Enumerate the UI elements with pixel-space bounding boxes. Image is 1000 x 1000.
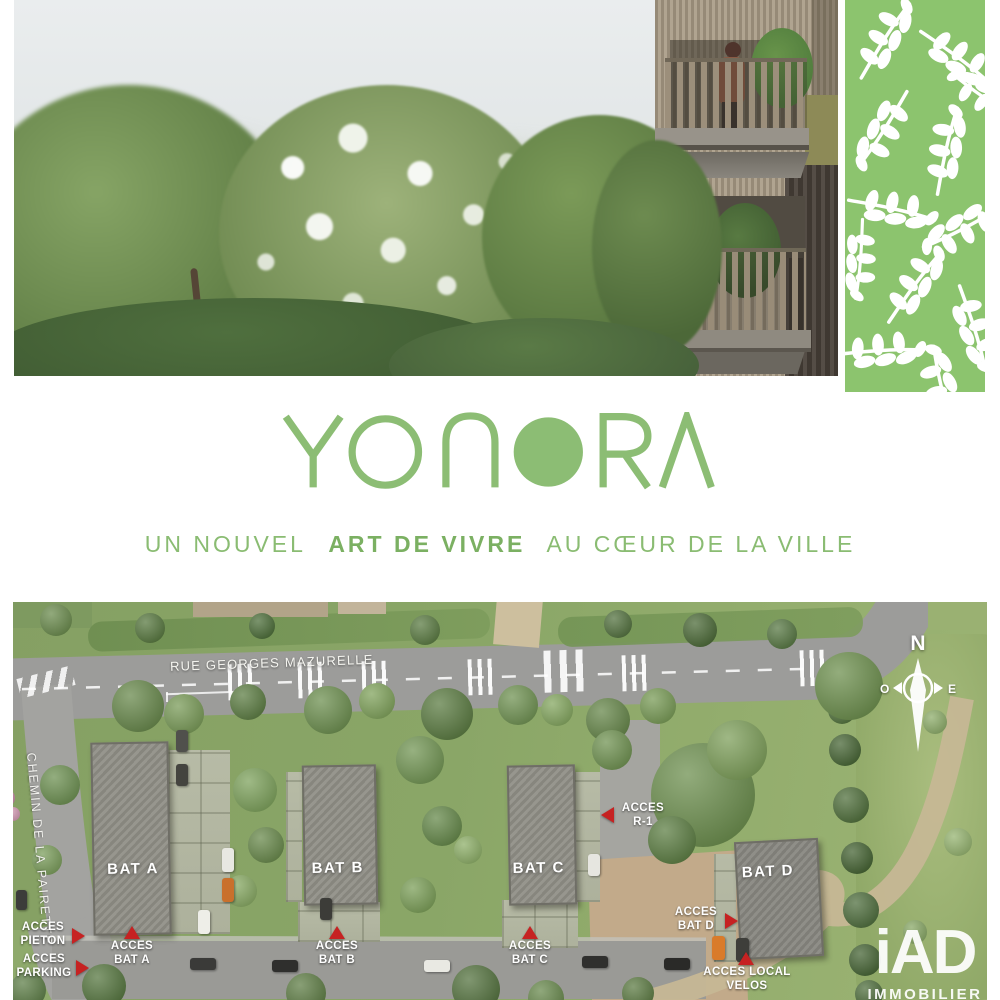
access-marker-r1: ACCESR-1 [616,801,670,830]
parked-car [424,960,450,972]
access-marker-pieton: ACCESPIETON [14,920,72,949]
margin-strip [0,602,13,1000]
iad-subtext: IMMOBILIER [860,986,990,1000]
access-arrow-icon [124,926,140,939]
margin-strip [987,602,1000,1000]
balcony-railing [665,58,807,132]
parked-car [712,936,725,960]
letter-n [446,416,495,487]
parked-car [176,764,188,786]
access-marker-bat-c: ACCESBAT C [498,939,562,968]
compass-north-label: N [910,632,925,656]
parked-car [320,898,332,920]
brand-logo: YONORA [0,412,1000,497]
parked-car [222,848,234,872]
iad-watermark: iAD IMMOBILIER [860,922,990,1000]
tagline-part: UN NOUVEL [145,531,306,557]
letter-r [603,417,648,488]
person [725,42,741,58]
parked-car [198,910,210,934]
compass-east-label: E [948,682,956,696]
access-marker-parking: ACCESPARKING [12,952,76,981]
letter-y [286,417,341,488]
site-plan: BAT A BAT B BAT C BAT D RUE GEORGES MAZU… [0,602,1000,1000]
access-arrow-icon [76,960,89,976]
compass: N O E [868,632,968,757]
access-marker-velos: ACCES LOCALVELOS [692,965,802,994]
parked-car [664,958,690,970]
access-marker-bat-a: ACCESBAT A [100,939,164,968]
leaf-o-icon [514,417,583,486]
parked-car [16,890,27,910]
leaf-pattern-panel [845,0,985,392]
parked-car [588,854,600,876]
compass-west-label: O [880,682,889,696]
parked-car [176,730,188,752]
access-marker-bat-b: ACCESBAT B [305,939,369,968]
iad-logo: iAD [860,922,990,984]
yonora-logotype [280,412,720,492]
hero-photo [14,0,838,376]
access-arrow-icon [738,952,754,965]
access-arrow-icon [329,926,345,939]
access-marker-bat-d: ACCESBAT D [668,905,724,934]
letter-o [352,419,418,485]
access-arrow-icon [601,807,614,823]
access-arrow-icon [72,928,85,944]
parked-car [272,960,298,972]
facade-panel [805,95,838,165]
access-arrow-icon [725,913,738,929]
tagline: UN NOUVEL ART DE VIVRE AU CŒUR DE LA VIL… [0,531,1000,558]
tagline-part: AU CŒUR DE LA VILLE [546,531,855,557]
tagline-part-bold: ART DE VIVRE [328,531,525,557]
leaf-pattern [845,0,985,392]
parked-car [190,958,216,970]
parked-car [582,956,608,968]
parked-car [222,878,234,902]
access-arrow-icon [522,926,538,939]
flyer-page: YONORA UN NOUVEL ART DE VIVRE AU CŒUR DE… [0,0,1000,1000]
letter-a [662,417,711,488]
